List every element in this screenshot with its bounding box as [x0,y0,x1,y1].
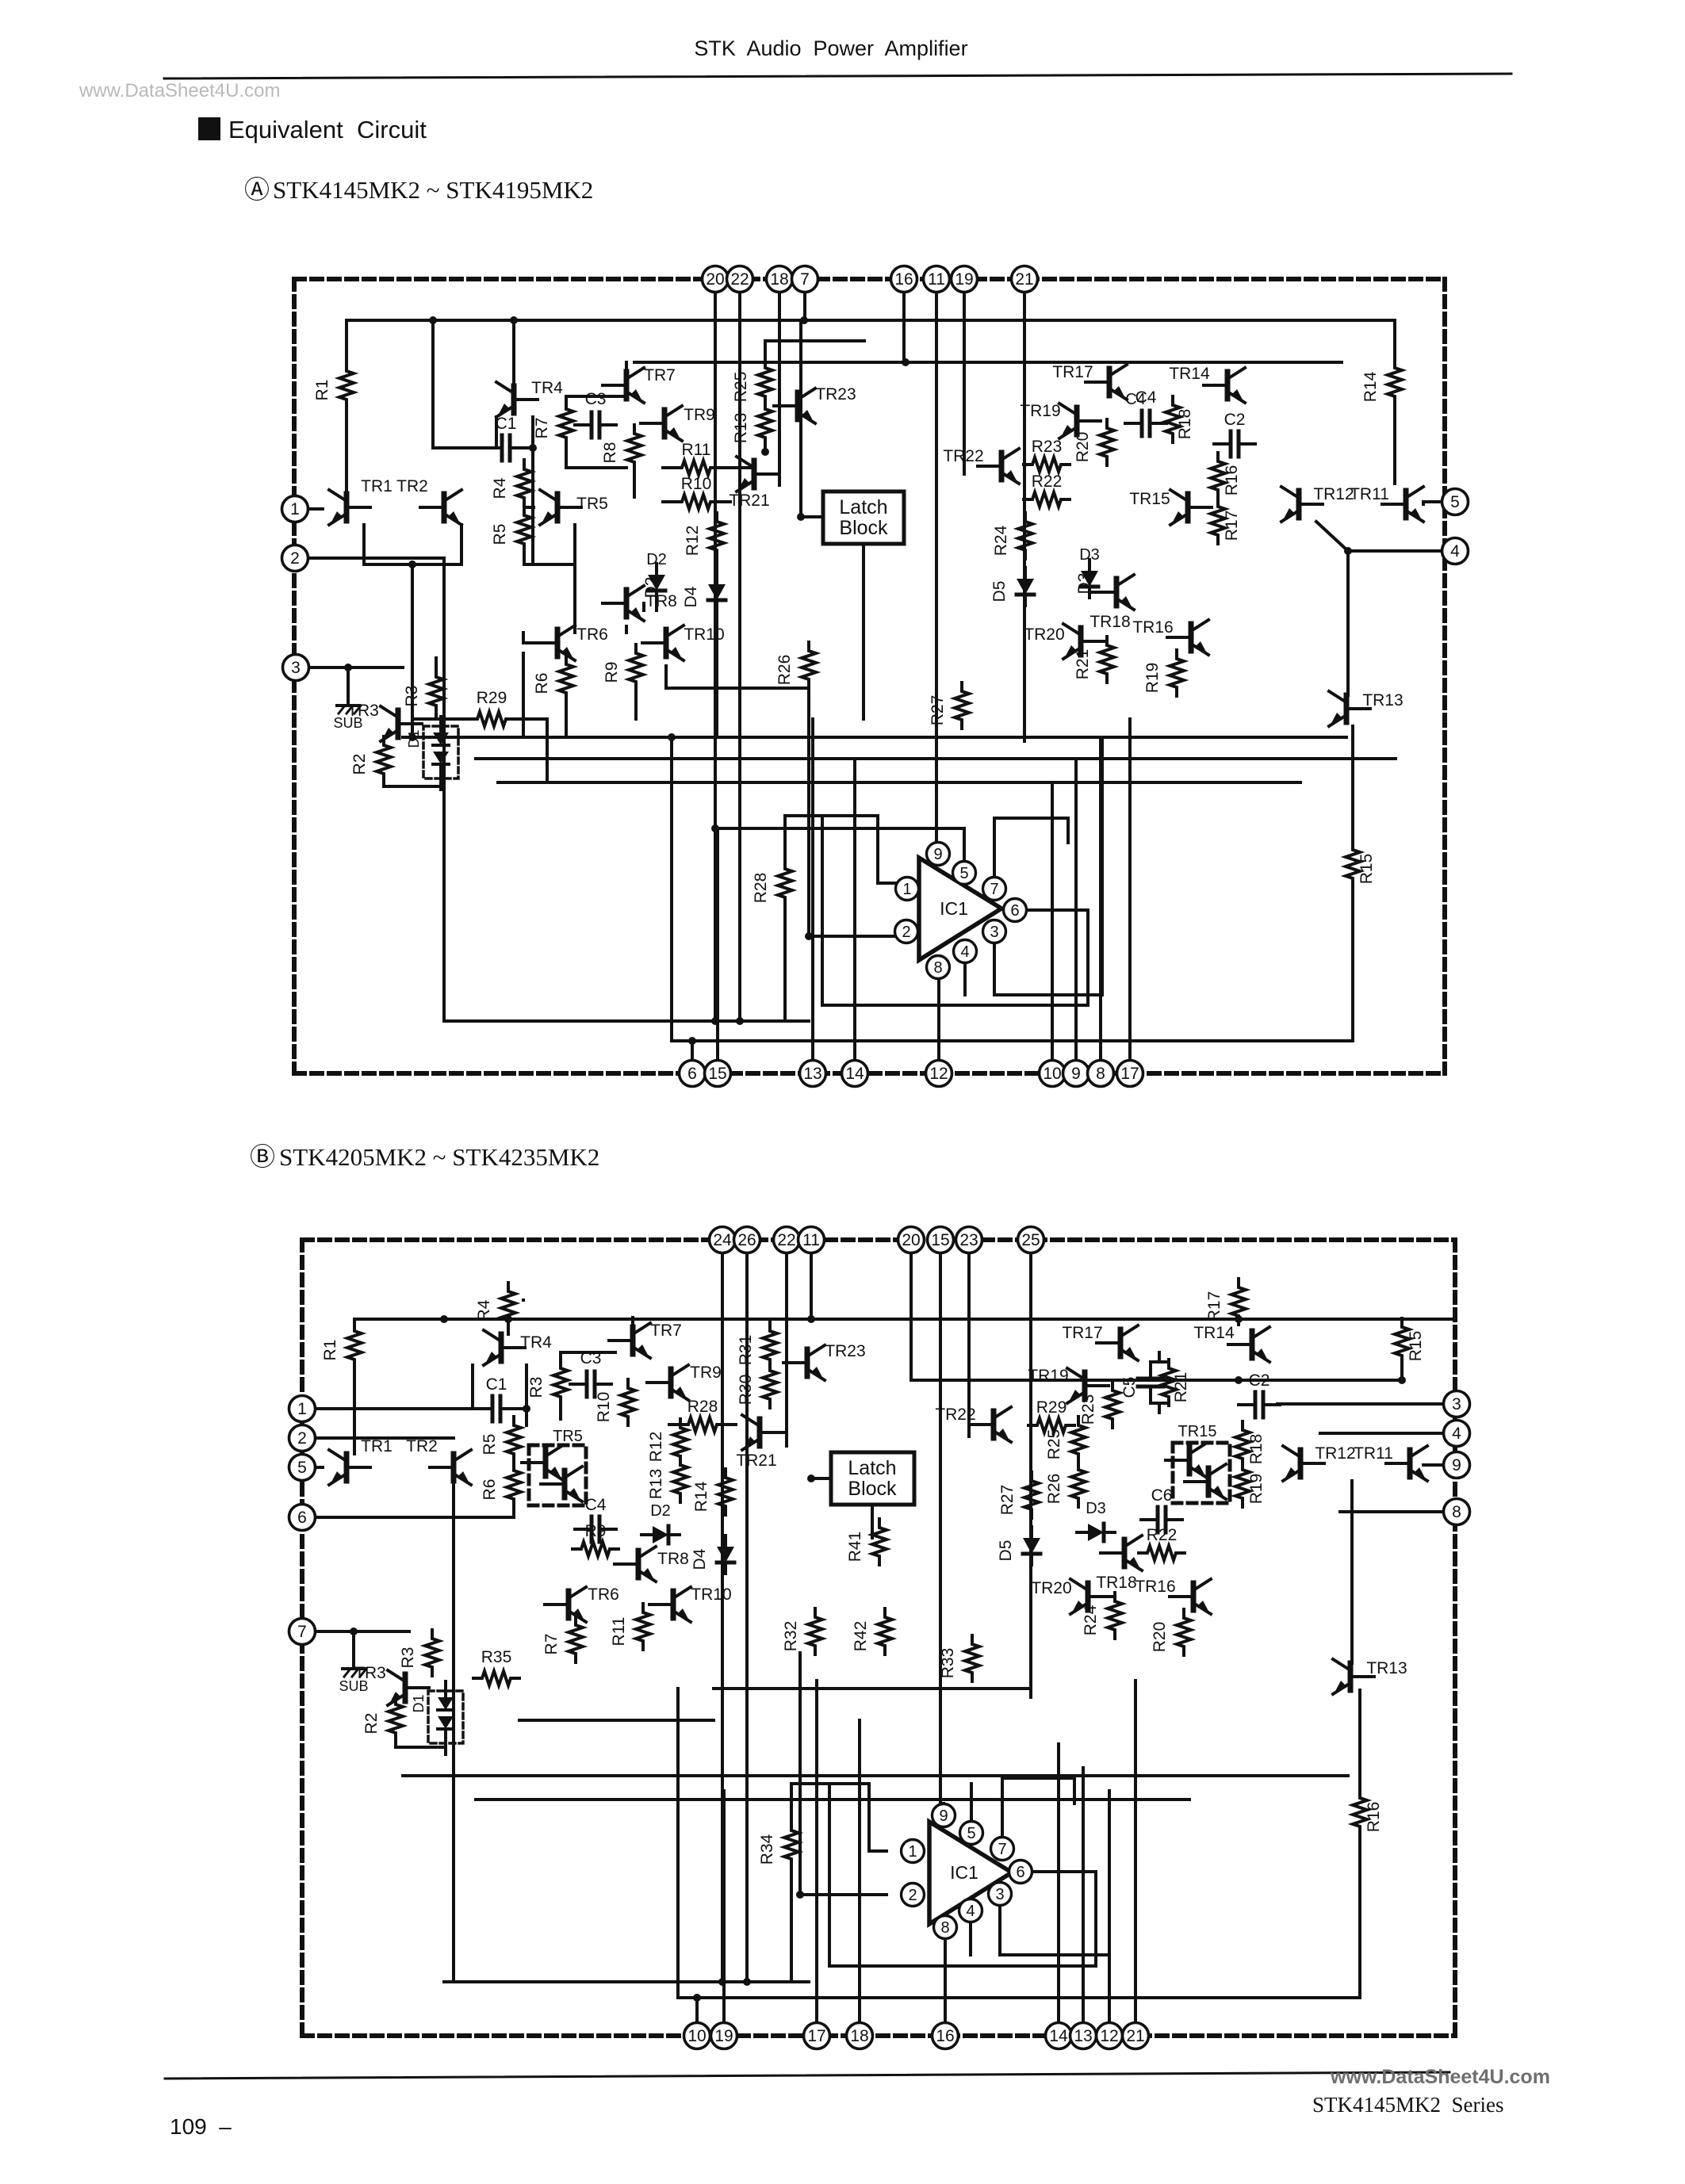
svg-text:18: 18 [850,2027,868,2045]
svg-text:D3: D3 [1079,546,1100,564]
svg-text:TR14: TR14 [1169,365,1210,383]
svg-text:R16: R16 [1223,465,1241,496]
svg-text:C1: C1 [496,415,517,433]
svg-text:STK Audio Power Amplifier: STK Audio Power Amplifier [694,36,967,60]
svg-text:R16: R16 [1365,1802,1383,1833]
svg-text:TR15: TR15 [1129,490,1170,508]
svg-text:R15: R15 [1407,1331,1425,1362]
svg-text:TR20: TR20 [1031,1579,1071,1597]
svg-text:TR7: TR7 [644,366,676,384]
svg-text:R7: R7 [542,1634,561,1655]
svg-text:TR21: TR21 [736,1452,776,1470]
svg-text:R10: R10 [595,1392,613,1423]
svg-text:SUB: SUB [333,715,362,731]
svg-text:R22: R22 [1032,472,1063,491]
svg-text:R32: R32 [782,1621,800,1652]
svg-text:D2: D2 [650,1502,671,1520]
svg-text:4: 4 [960,943,969,961]
svg-text:TR15: TR15 [1178,1423,1217,1440]
svg-text:9: 9 [933,846,942,863]
svg-text:R27: R27 [998,1485,1017,1516]
svg-text:1: 1 [297,1400,307,1418]
svg-text:TR19: TR19 [1028,1367,1068,1385]
svg-text:TR19: TR19 [1020,402,1060,420]
svg-text:2: 2 [290,549,300,568]
svg-text:TR1: TR1 [361,1437,393,1455]
svg-text:R12: R12 [647,1432,665,1463]
svg-text:TR14: TR14 [1193,1324,1235,1342]
svg-text:4: 4 [966,1903,975,1920]
svg-text:R24: R24 [1082,1605,1100,1635]
svg-text:TR18: TR18 [1096,1574,1136,1592]
svg-text:TR5: TR5 [576,495,608,513]
svg-text:15: 15 [931,1231,949,1249]
svg-text:3: 3 [291,659,301,677]
svg-text:7: 7 [297,1623,307,1641]
svg-text:SUB: SUB [339,1678,368,1694]
svg-text:17: 17 [807,2027,825,2045]
svg-text:TR2: TR2 [396,477,428,495]
svg-text:R23: R23 [1032,438,1063,456]
svg-text:R17: R17 [1223,511,1241,541]
svg-text:C3: C3 [585,390,607,408]
svg-text:8: 8 [1452,1503,1461,1521]
svg-text:TR8: TR8 [657,1550,689,1568]
svg-text:16: 16 [936,2027,954,2045]
svg-text:Ⓑ: Ⓑ [250,1142,275,1171]
svg-text:R3: R3 [403,686,421,707]
svg-text:5: 5 [297,1459,307,1477]
svg-text:R4: R4 [475,1299,493,1321]
svg-text:R9: R9 [585,1522,607,1540]
svg-text:R3: R3 [399,1647,417,1669]
svg-text:D1: D1 [406,729,422,748]
svg-text:3: 3 [995,1886,1004,1903]
svg-text:R28: R28 [687,1398,718,1416]
svg-text:R6: R6 [533,673,551,694]
svg-text:7: 7 [990,881,998,898]
svg-text:TR18: TR18 [1090,613,1130,631]
svg-text:Equivalent Circuit: Equivalent Circuit [228,116,427,143]
svg-text:TR23: TR23 [825,1342,865,1360]
svg-text:R20: R20 [1151,1622,1169,1653]
svg-text:19: 19 [955,270,973,289]
svg-text:R24: R24 [992,525,1010,556]
svg-text:TR13: TR13 [1362,691,1403,710]
svg-text:C4: C4 [1125,391,1146,408]
svg-text:STK4145MK2 Series: STK4145MK2 Series [1312,2093,1504,2117]
svg-text:12: 12 [1100,2027,1118,2045]
svg-text:12: 12 [929,1065,948,1083]
svg-text:IC1: IC1 [940,898,968,919]
svg-text:TR9: TR9 [690,1364,722,1382]
svg-text:R14: R14 [692,1481,710,1512]
svg-text:8: 8 [933,959,942,977]
svg-text:6: 6 [297,1509,307,1527]
svg-text:TR16: TR16 [1132,618,1173,637]
svg-text:22: 22 [730,270,749,289]
svg-text:R42: R42 [852,1621,870,1652]
svg-text:TR22: TR22 [935,1406,975,1424]
svg-text:C1: C1 [486,1375,507,1394]
svg-text:TR6: TR6 [576,625,608,644]
svg-text:TR12: TR12 [1313,485,1354,503]
svg-text:D4: D4 [691,1548,709,1570]
svg-text:R1: R1 [321,1340,339,1361]
svg-text:6: 6 [687,1065,697,1083]
svg-text:R1: R1 [313,380,331,401]
svg-text:R21: R21 [1172,1372,1190,1403]
svg-text:R25: R25 [732,372,750,403]
svg-text:IC1: IC1 [950,1862,978,1883]
svg-text:D2: D2 [646,551,667,568]
svg-text:R23: R23 [1079,1394,1097,1425]
svg-text:R28: R28 [752,873,770,904]
svg-text:R30: R30 [737,1375,755,1406]
svg-text:Block: Block [839,517,888,539]
svg-text:R26: R26 [1045,1474,1063,1505]
svg-text:Latch: Latch [839,496,887,518]
svg-text:TR23: TR23 [815,385,856,404]
svg-text:R19: R19 [1247,1474,1266,1505]
svg-text:R33: R33 [939,1648,957,1679]
svg-text:7: 7 [800,270,810,289]
svg-text:10: 10 [1043,1065,1061,1083]
svg-text:TR2: TR2 [406,1437,438,1455]
svg-text:14: 14 [845,1065,864,1083]
svg-text:TR11: TR11 [1350,485,1389,503]
svg-text:R21: R21 [1074,649,1092,680]
svg-text:D5: D5 [997,1540,1015,1562]
svg-text:6: 6 [1010,902,1019,920]
svg-text:R22: R22 [1147,1526,1178,1544]
svg-text:25: 25 [1021,1231,1040,1249]
svg-text:R2: R2 [350,754,369,775]
svg-text:17: 17 [1120,1065,1139,1083]
svg-text:R11: R11 [610,1617,628,1647]
svg-text:D3: D3 [1075,573,1093,595]
svg-text:15: 15 [708,1065,726,1083]
svg-text:21: 21 [1126,2027,1144,2045]
svg-text:11: 11 [802,1231,820,1249]
svg-text:www.DataSheet4U.com: www.DataSheet4U.com [1330,2066,1550,2088]
svg-text:3: 3 [990,924,998,941]
svg-text:R13: R13 [732,413,750,444]
svg-text:2: 2 [902,924,910,941]
svg-text:C4: C4 [585,1496,607,1514]
svg-text:R10: R10 [681,475,712,493]
svg-text:18: 18 [770,270,788,289]
svg-text:R2: R2 [362,1713,381,1735]
svg-text:9: 9 [1071,1065,1081,1083]
svg-text:23: 23 [959,1231,978,1249]
svg-text:R5: R5 [491,524,509,545]
svg-text:R6: R6 [481,1479,499,1501]
svg-text:16: 16 [894,270,913,289]
svg-text:19: 19 [714,2027,733,2045]
svg-text:D3: D3 [1086,1500,1106,1517]
svg-text:21: 21 [1015,270,1033,289]
svg-text:TR9: TR9 [684,406,715,424]
svg-text:Ⓐ: Ⓐ [244,175,270,204]
svg-text:STK4205MK2 ~ STK4235MK2: STK4205MK2 ~ STK4235MK2 [279,1143,599,1171]
svg-text:TR20: TR20 [1024,625,1064,644]
svg-text:10: 10 [687,2027,706,2045]
svg-text:R5: R5 [481,1434,499,1455]
svg-text:R12: R12 [684,526,702,557]
svg-text:R31: R31 [737,1335,755,1366]
svg-text:R19: R19 [1143,663,1162,694]
svg-text:1: 1 [902,881,911,898]
svg-text:4: 4 [1452,1425,1461,1443]
svg-text:R8: R8 [601,442,619,464]
svg-text:R11: R11 [682,441,711,459]
svg-text:TR17: TR17 [1062,1324,1102,1342]
svg-text:TR21: TR21 [729,491,769,510]
svg-text:R29: R29 [1036,1398,1067,1417]
svg-text:TR16: TR16 [1135,1578,1175,1596]
svg-text:5: 5 [967,1825,975,1842]
svg-text:R34: R34 [758,1834,776,1865]
svg-text:5: 5 [959,865,968,882]
svg-text:R15: R15 [1358,854,1376,885]
svg-text:13: 13 [1074,2027,1092,2045]
svg-text:8: 8 [1096,1065,1105,1083]
svg-text:Latch: Latch [848,1457,896,1479]
svg-text:R35: R35 [481,1648,512,1666]
svg-text:7: 7 [998,1841,1006,1858]
svg-text:22: 22 [777,1231,795,1249]
svg-text:TR4: TR4 [520,1333,552,1352]
svg-text:11: 11 [928,270,945,289]
svg-text:D4: D4 [682,586,700,607]
svg-text:R41: R41 [846,1532,864,1562]
svg-text:C2: C2 [1224,411,1246,429]
svg-text:TR11: TR11 [1354,1444,1393,1463]
svg-text:TR8: TR8 [645,592,677,610]
svg-text:3: 3 [1452,1395,1461,1413]
svg-text:1: 1 [908,1843,917,1861]
svg-text:R3: R3 [527,1377,546,1398]
svg-text:TR10: TR10 [691,1585,731,1604]
svg-text:TR1: TR1 [361,477,393,495]
svg-text:6: 6 [1016,1864,1024,1881]
svg-text:TR5: TR5 [553,1428,583,1445]
svg-text:R18: R18 [1176,409,1194,440]
svg-text:20: 20 [706,270,724,289]
svg-text:2: 2 [297,1429,307,1448]
svg-text:www.DataSheet4U.com: www.DataSheet4U.com [79,80,280,101]
svg-text:109 –: 109 – [170,2114,232,2139]
svg-text:TR4: TR4 [531,379,563,397]
svg-text:R13: R13 [647,1469,665,1500]
svg-text:TR7: TR7 [650,1321,682,1340]
svg-text:4: 4 [1450,542,1460,560]
svg-text:R25: R25 [1045,1429,1063,1460]
svg-text:26: 26 [737,1231,756,1249]
svg-text:8: 8 [940,1919,949,1937]
svg-text:R9: R9 [603,662,621,683]
svg-text:D5: D5 [990,581,1009,602]
svg-text:R20: R20 [1074,432,1092,463]
svg-text:TR22: TR22 [943,447,983,465]
svg-text:1: 1 [290,500,300,518]
svg-text:TR13: TR13 [1366,1659,1407,1677]
svg-text:R17: R17 [1205,1291,1224,1322]
svg-text:Block: Block [848,1478,897,1500]
svg-text:13: 13 [803,1065,821,1083]
svg-text:TR17: TR17 [1052,363,1093,381]
svg-text:9: 9 [1452,1456,1461,1474]
svg-text:R7: R7 [533,418,551,439]
svg-text:5: 5 [1450,493,1460,511]
svg-text:TR6: TR6 [588,1585,619,1604]
svg-text:D1: D1 [411,1694,427,1712]
svg-text:R26: R26 [775,655,794,686]
svg-text:C6: C6 [1151,1486,1173,1505]
svg-text:R29: R29 [477,689,507,707]
svg-text:R14: R14 [1361,371,1380,402]
svg-text:24: 24 [713,1231,732,1249]
svg-text:2: 2 [908,1887,917,1904]
svg-text:9: 9 [939,1807,948,1825]
svg-text:R27: R27 [929,695,947,726]
svg-text:R4: R4 [491,477,509,499]
svg-text:TR12: TR12 [1315,1444,1355,1463]
svg-text:14: 14 [1049,2027,1068,2045]
svg-text:STK4145MK2 ~ STK4195MK2: STK4145MK2 ~ STK4195MK2 [273,176,593,204]
svg-text:20: 20 [902,1231,920,1249]
svg-text:R18: R18 [1247,1434,1266,1465]
